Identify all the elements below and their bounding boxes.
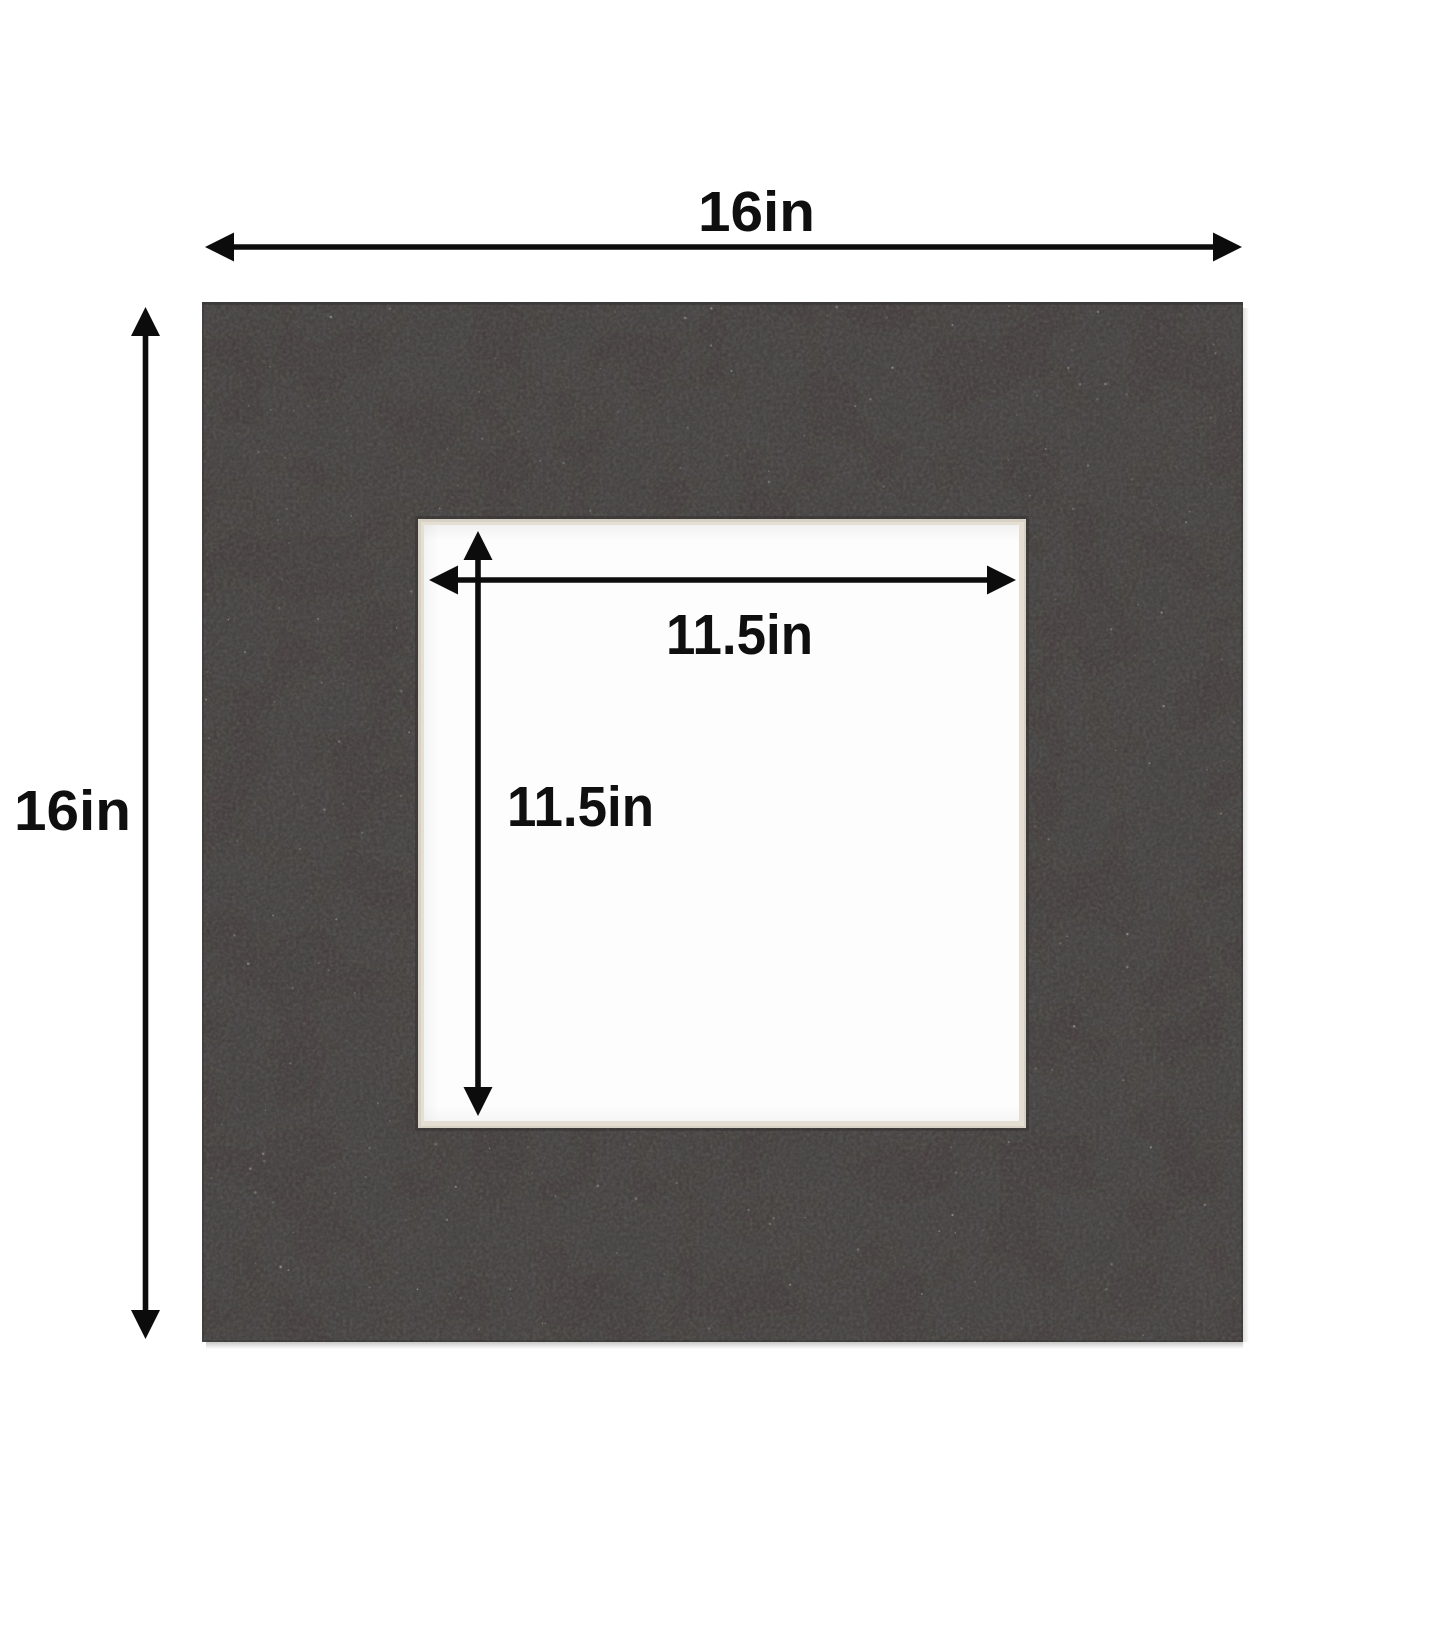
svg-text:16in: 16in [14,779,131,843]
svg-text:16in: 16in [698,180,815,244]
svg-text:11.5in: 11.5in [666,603,813,667]
svg-text:11.5in: 11.5in [507,775,654,839]
